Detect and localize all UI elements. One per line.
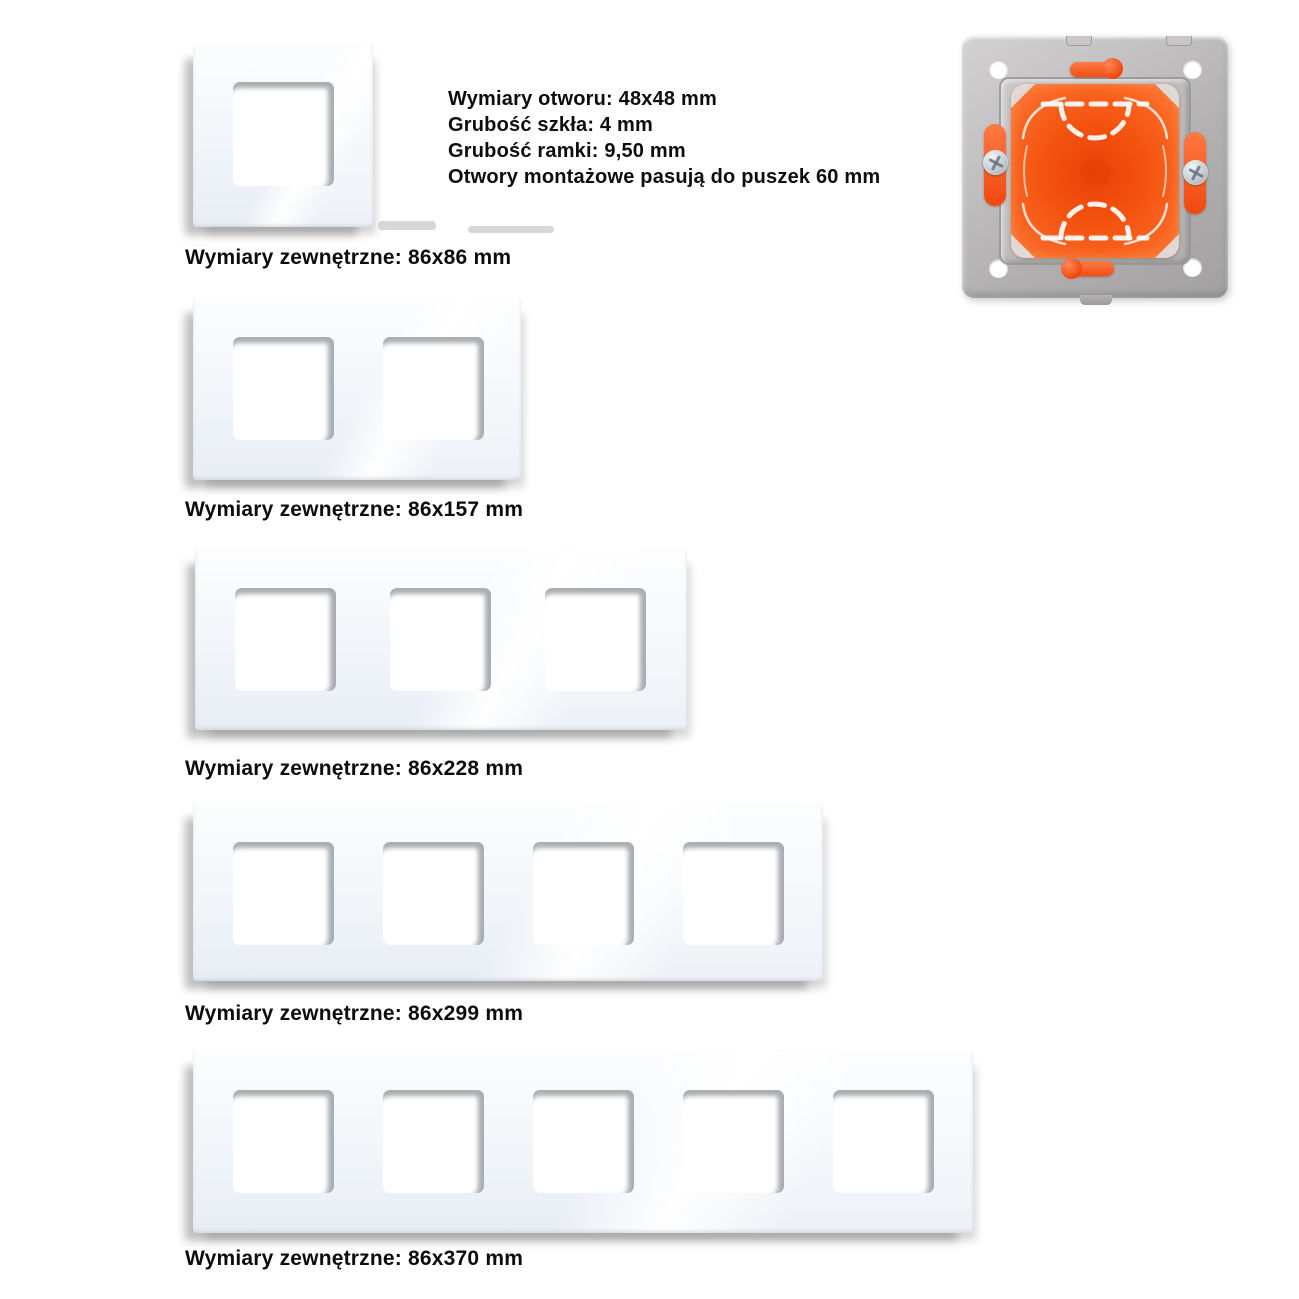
- center-knockout-dot: [1080, 157, 1110, 187]
- switch-opening: [390, 588, 491, 691]
- screw-hole: [1183, 60, 1202, 79]
- switch-opening: [233, 1090, 334, 1193]
- orange-clip-top: [1070, 62, 1112, 77]
- switch-opening: [683, 842, 784, 945]
- switch-opening: [833, 1090, 934, 1193]
- frame-5gang-dimensions-label: Wymiary zewnętrzne: 86x370 mm: [185, 1246, 523, 1272]
- mount-top-notch: [1066, 36, 1092, 46]
- fixing-screw-right: [1183, 160, 1208, 185]
- spec-line-mounting-holes: Otwory montażowe pasują do puszek 60 mm: [448, 164, 880, 190]
- spec-text-block: Wymiary otworu: 48x48 mm Grubość szkła: …: [448, 86, 880, 190]
- knockout-markings: [1011, 84, 1179, 258]
- orange-clip-bottom: [1072, 261, 1114, 276]
- frame-4gang-dimensions-label: Wymiary zewnętrzne: 86x299 mm: [185, 1001, 523, 1027]
- frame-1gang-dimensions-label: Wymiary zewnętrzne: 86x86 mm: [185, 245, 511, 271]
- spec-line-frame-thickness: Grubość ramki: 9,50 mm: [448, 138, 880, 164]
- switch-opening: [545, 588, 646, 691]
- switch-opening: [233, 842, 334, 945]
- product-spec-sheet: Wymiary otworu: 48x48 mm Grubość szkła: …: [0, 0, 1299, 1299]
- switch-opening: [233, 337, 334, 440]
- switch-opening: [683, 1090, 784, 1193]
- frame-shadow-artifact: [468, 226, 554, 233]
- flush-mount-box-photo: [962, 36, 1228, 298]
- glass-frame-5gang: [193, 1050, 973, 1233]
- glass-frame-4gang: [193, 802, 823, 981]
- switch-opening: [533, 1090, 634, 1193]
- mount-top-notch: [1166, 36, 1192, 46]
- screw-hole: [989, 60, 1008, 79]
- glass-frame-3gang: [195, 548, 687, 730]
- frame-2gang-dimensions-label: Wymiary zewnętrzne: 86x157 mm: [185, 497, 523, 523]
- mount-bottom-tab: [1080, 295, 1112, 305]
- switch-opening: [383, 1090, 484, 1193]
- frame-shadow-artifact: [378, 221, 436, 230]
- switch-opening: [383, 842, 484, 945]
- frame-3gang-dimensions-label: Wymiary zewnętrzne: 86x228 mm: [185, 756, 523, 782]
- spec-line-opening-size: Wymiary otworu: 48x48 mm: [448, 86, 880, 112]
- switch-opening: [533, 842, 634, 945]
- switch-opening: [233, 82, 334, 186]
- switch-opening: [235, 588, 336, 691]
- glass-frame-2gang: [193, 297, 521, 480]
- fixing-screw-left: [983, 150, 1008, 175]
- glass-frame-1gang: [193, 43, 373, 227]
- spec-line-glass-thickness: Grubość szkła: 4 mm: [448, 112, 880, 138]
- switch-opening: [383, 337, 484, 440]
